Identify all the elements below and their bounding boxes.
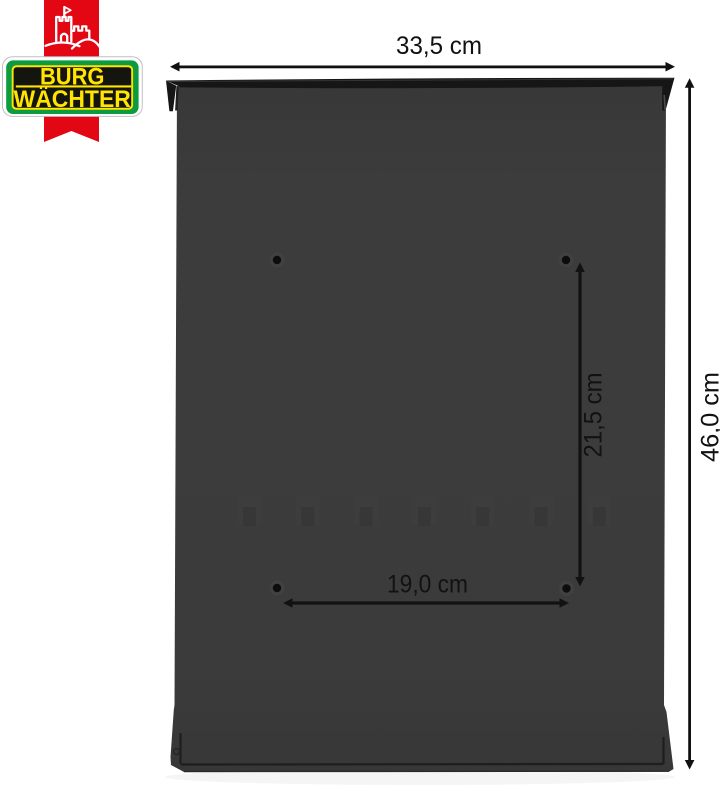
- svg-text:19,0 cm: 19,0 cm: [387, 571, 468, 599]
- svg-text:46,0 cm: 46,0 cm: [697, 372, 720, 462]
- svg-text:21,5 cm: 21,5 cm: [580, 373, 608, 458]
- svg-text:WÄCHTER: WÄCHTER: [14, 86, 132, 113]
- svg-text:33,5 cm: 33,5 cm: [396, 32, 482, 60]
